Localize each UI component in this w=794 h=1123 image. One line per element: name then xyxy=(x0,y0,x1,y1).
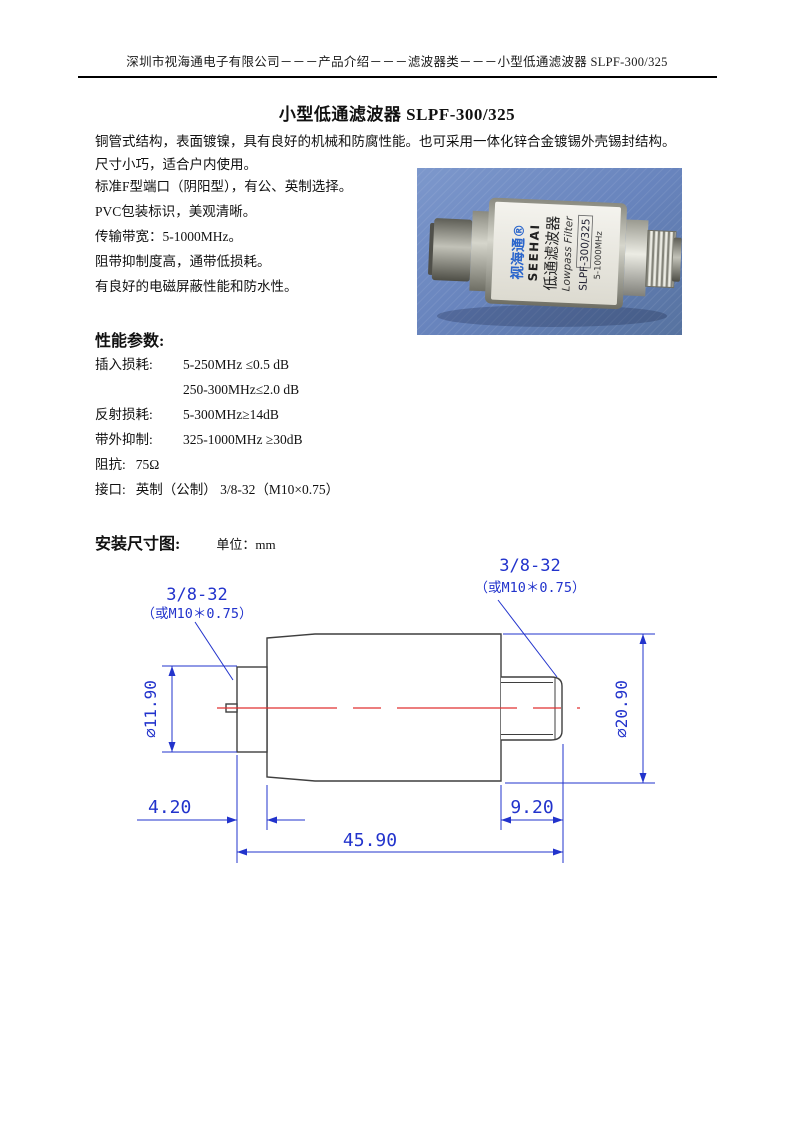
dim-length-total: 45.90 xyxy=(343,830,397,851)
label-band: 5-1000MHz xyxy=(593,230,605,279)
thread-label-left-line2: （或M10＊0.75） xyxy=(142,606,253,622)
installation-section-header: 安装尺寸图: 单位：mm xyxy=(95,530,276,554)
thread-label-right-line1: 3/8-32 xyxy=(499,556,560,576)
param-value: 5-250MHz ≤0.5 dB xyxy=(183,356,289,381)
param-row: 插入损耗: 5-250MHz ≤0.5 dB xyxy=(95,356,339,381)
param-value: 325-1000MHz ≥30dB xyxy=(183,431,303,456)
param-label: 插入损耗: xyxy=(95,356,183,381)
param-label xyxy=(95,381,183,406)
feature-list: 标准F型端口（阴阳型），有公、英制选择。 PVC包装标识，美观清晰。 传输带宽：… xyxy=(95,178,425,303)
label-brand-en: SEEHAI xyxy=(526,223,543,281)
feature-item: PVC包装标识，美观清晰。 xyxy=(95,203,425,228)
param-value: 250-300MHz≤2.0 dB xyxy=(183,381,299,406)
param-row: 带外抑制: 325-1000MHz ≥30dB xyxy=(95,431,339,456)
feature-item: 传输带宽：5-1000MHz。 xyxy=(95,228,425,253)
performance-heading: 性能参数: xyxy=(95,327,164,351)
unit-label: 单位：mm xyxy=(216,534,275,553)
param-label: 接口: xyxy=(95,481,126,506)
performance-table: 插入损耗: 5-250MHz ≤0.5 dB 250-300MHz≤2.0 dB… xyxy=(95,356,339,506)
feature-item: 阻带抑制度高，通带低损耗。 xyxy=(95,253,425,278)
right-collar xyxy=(623,219,648,296)
feature-item: 标准F型端口（阴阳型），有公、英制选择。 xyxy=(95,178,425,203)
right-thread xyxy=(646,230,676,287)
dim-length-right: 9.20 xyxy=(510,797,553,818)
device-shadow xyxy=(437,305,667,327)
header-rule xyxy=(78,76,717,78)
dim-diameter-small: ∅11.90 xyxy=(141,680,160,738)
param-row: 反射损耗: 5-300MHz≥14dB xyxy=(95,406,339,431)
param-value: 75Ω xyxy=(136,456,160,481)
thread-label-left-line1: 3/8-32 xyxy=(166,585,227,605)
document-page: 深圳市视海通电子有限公司－－－产品介绍－－－滤波器类－－－小型低通滤波器 SLP… xyxy=(0,0,794,1123)
installation-heading: 安装尺寸图: xyxy=(95,530,180,554)
feature-item: 有良好的电磁屏蔽性能和防水性。 xyxy=(95,278,425,303)
param-row: 250-300MHz≤2.0 dB xyxy=(95,381,339,406)
param-label: 反射损耗: xyxy=(95,406,183,431)
dim-length-left: 4.20 xyxy=(148,797,191,818)
page-header-text: 深圳市视海通电子有限公司－－－产品介绍－－－滤波器类－－－小型低通滤波器 SLP… xyxy=(0,51,794,70)
left-connector-outline xyxy=(237,667,267,752)
param-label: 带外抑制: xyxy=(95,431,183,456)
page-title: 小型低通滤波器 SLPF-300/325 xyxy=(0,100,794,125)
label-product-cn: 低通滤波器 xyxy=(541,215,562,291)
product-photo: 视海通® SEEHAI 低通滤波器 Lowpass Filter SLPF-30… xyxy=(417,168,682,335)
dim-diameter-large: ∅20.90 xyxy=(612,680,631,738)
dimension-drawing: 3/8-32 （或M10＊0.75） 3/8-32 （或M10＊0.75） ∅1… xyxy=(115,552,690,882)
param-row: 接口: 英制（公制） 3/8-32（M10×0.75） xyxy=(95,481,339,506)
param-row: 阻抗: 75Ω xyxy=(95,456,339,481)
thread-label-right-line2: （或M10＊0.75） xyxy=(475,580,586,596)
param-value: 英制（公制） 3/8-32（M10×0.75） xyxy=(136,481,339,506)
param-value: 5-300MHz≥14dB xyxy=(183,406,279,431)
intro-line: 铜管式结构，表面镀镍，具有良好的机械和防腐性能。也可采用一体化锌合金镀锡外壳锡封… xyxy=(95,131,723,154)
param-label: 阻抗: xyxy=(95,456,126,481)
